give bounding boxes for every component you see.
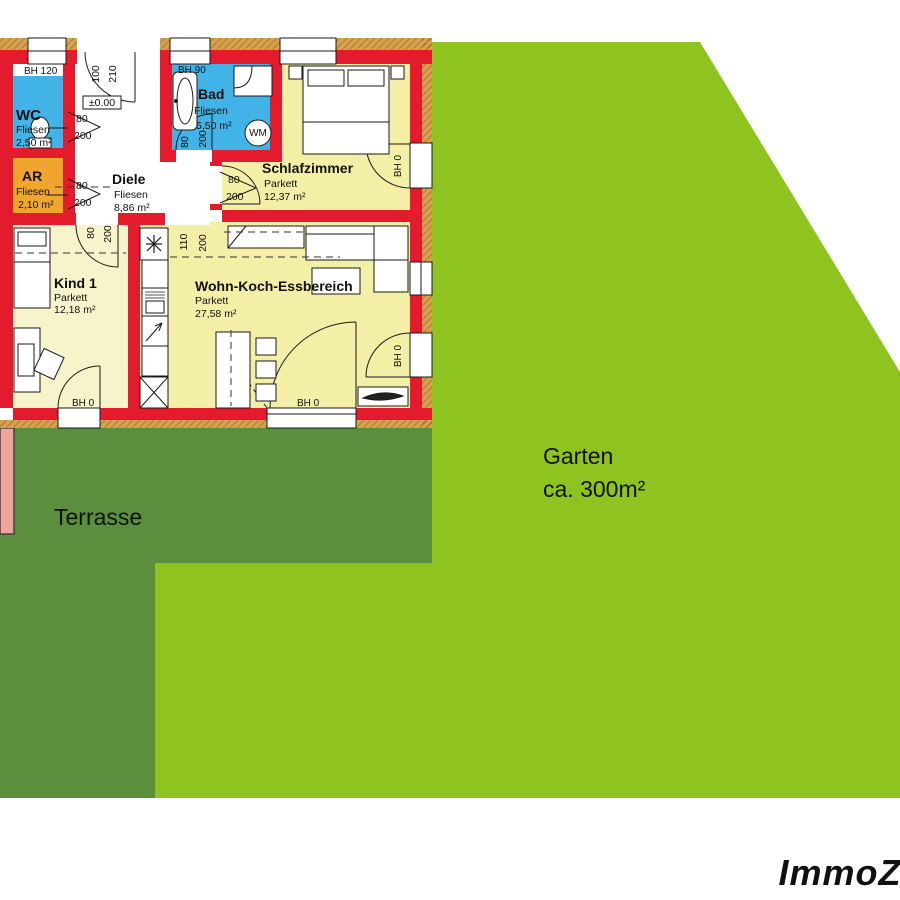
bad-door-gap [176, 150, 212, 162]
kitchen-window-width: 110 [178, 233, 190, 250]
room-wc-name: WC [16, 107, 41, 124]
room-diele-floor-label: Fliesen [114, 189, 148, 201]
neighbor-wall-strip [0, 428, 14, 534]
room-schlafzimmer-area: 12,37 m² [264, 191, 306, 203]
room-ar-floor-label: Fliesen [16, 186, 50, 198]
bh90-label: BH 90 [178, 65, 206, 76]
dining-chair [256, 361, 276, 378]
floor-plan-svg: BH 120 BH 90 100 210 ±0.00 WC Fliesen 2,… [0, 0, 900, 900]
room-kind1-name: Kind 1 [54, 275, 97, 291]
room-diele-area: 8,86 m² [114, 202, 150, 214]
immoz-watermark: ImmoZ [778, 852, 900, 893]
room-bad-name: Bad [198, 86, 224, 102]
dining-chair [256, 338, 276, 355]
terrace-label: Terrasse [54, 504, 142, 530]
room-kind1-floor-label: Parkett [54, 292, 87, 304]
sideboard [228, 226, 304, 248]
schlafzimmer-terrace-door-gap [410, 143, 432, 188]
wohn-terrace-door-gap [410, 333, 432, 377]
apartment: BH 120 BH 90 100 210 ±0.00 WC Fliesen 2,… [0, 38, 432, 428]
room-kind1-area: 12,18 m² [54, 304, 96, 316]
bad-door-height: 200 [197, 130, 209, 148]
sofa-chaise [374, 226, 408, 292]
dining-table [216, 332, 250, 408]
room-wc-area: 2,50 m² [16, 137, 52, 149]
ar-door-width: 80 [76, 180, 88, 192]
level-label: ±0.00 [89, 97, 115, 109]
bad-door-width: 80 [179, 136, 191, 148]
schlafzimmer-door-height: 200 [226, 191, 244, 203]
garden-size: ca. 300m² [543, 476, 646, 502]
entrance-width-label: 100 [90, 65, 102, 83]
kind1-door-height: 200 [102, 225, 114, 243]
wc-door-width: 80 [76, 113, 88, 125]
nightstand [289, 66, 302, 79]
living-terrace-door-bh: BH 0 [297, 398, 320, 409]
schlafzimmer-garden-door-bh: BH 0 [393, 154, 404, 177]
wohn-garden-door-bh: BH 0 [393, 344, 404, 367]
room-wohn-name: Wohn-Koch-Essbereich [195, 278, 353, 294]
dining-chair [256, 384, 276, 401]
washing-machine-label: WM [249, 128, 267, 139]
kind1-door-width: 80 [85, 227, 97, 239]
room-wc-floor-label: Fliesen [16, 124, 50, 136]
kitchen-cabinet [142, 346, 168, 376]
room-ar-area: 2,10 m² [18, 199, 54, 211]
room-bad-floor-label: Fliesen [194, 105, 228, 117]
room-diele-name: Diele [112, 171, 146, 187]
kitchen-passage-gap [165, 213, 210, 225]
garden-title: Garten [543, 443, 613, 469]
entrance-height-label: 210 [107, 65, 119, 83]
floor-plan-page: BH 120 BH 90 100 210 ±0.00 WC Fliesen 2,… [0, 0, 900, 900]
kitchen-cabinet [142, 260, 168, 288]
room-wohn-floor-label: Parkett [195, 295, 228, 307]
room-schlafzimmer-name: Schlafzimmer [262, 160, 354, 176]
bh120-label: BH 120 [24, 66, 58, 77]
room-bad-area: 5,50 m² [196, 120, 232, 132]
wc-door-height: 200 [74, 130, 92, 142]
shower [234, 66, 272, 96]
room-schlafzimmer-floor-label: Parkett [264, 178, 297, 190]
ar-door-height: 200 [74, 197, 92, 209]
kitchen-window-height: 200 [197, 234, 209, 252]
kind1-door-gap [76, 213, 118, 225]
entrance-opening [77, 38, 160, 64]
nightstand [391, 66, 404, 79]
kind1-terrace-door-gap [58, 408, 100, 428]
schlafzimmer-door-width: 80 [228, 174, 240, 186]
kind1-terrace-door-bh: BH 0 [72, 398, 95, 409]
living-terrace-door-gap [267, 408, 356, 428]
room-ar-name: AR [22, 168, 42, 184]
room-wohn-area: 27,58 m² [195, 308, 237, 320]
